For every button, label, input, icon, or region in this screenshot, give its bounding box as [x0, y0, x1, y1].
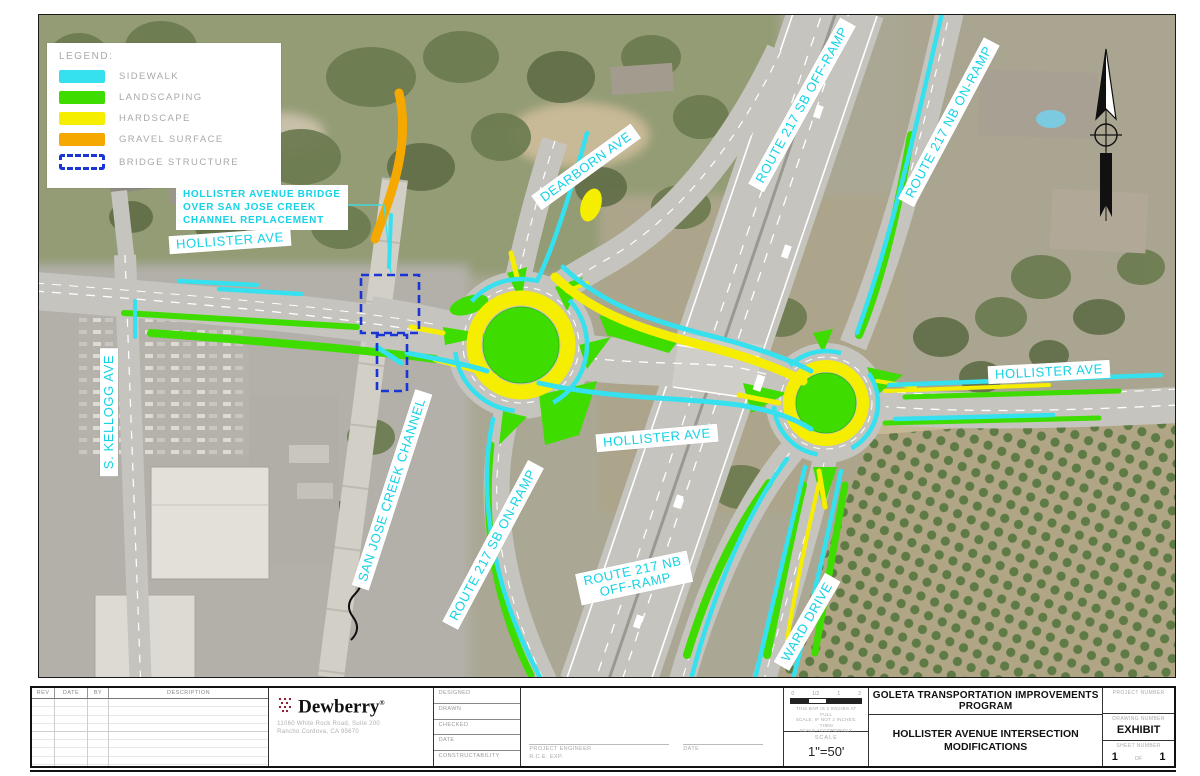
field-checked: CHECKED	[434, 720, 521, 736]
scale-bar: 01/212 THIS BAR IS 2 INCHES AT FULL SCAL…	[784, 688, 868, 732]
scale-value: 1"=50'	[784, 744, 868, 759]
rce-label: R.C.E. EXP.	[529, 754, 563, 760]
bridge-replacement-callout: HOLLISTER AVENUE BRIDGE OVER SAN JOSE CR…	[176, 185, 348, 230]
scale-note: THIS BAR IS 2 INCHES AT FULL SCALE. IF N…	[790, 706, 862, 734]
legend-item-bridge-structure: BRIDGE STRUCTURE	[59, 154, 271, 170]
date-label: DATE	[683, 746, 699, 752]
legend-item-gravel-surface: GRAVEL SURFACE	[59, 133, 271, 146]
road-label-s-kellogg-ave: S. KELLOGG AVE	[100, 348, 118, 476]
sheet-total: 1	[1159, 751, 1165, 763]
dewberry-mark-icon	[277, 696, 292, 713]
north-arrow-icon	[1084, 47, 1128, 223]
legend-label: BRIDGE STRUCTURE	[119, 157, 239, 168]
description-col: DESCRIPTION	[109, 688, 268, 698]
bridge-structure-swatch	[59, 154, 105, 170]
landscaping-swatch	[59, 91, 105, 104]
project-engineer-label: PROJECT ENGINEER	[529, 746, 591, 752]
revision-table-rows	[32, 699, 268, 766]
legend-label: SIDEWALK	[119, 71, 179, 82]
program-cell: GOLETA TRANSPORTATION IMPROVEMENTS PROGR…	[869, 688, 1103, 766]
legend-item-landscaping: LANDSCAPING	[59, 91, 271, 104]
legend-label: GRAVEL SURFACE	[119, 134, 224, 145]
by-col: BY	[88, 688, 109, 698]
gravel-surface-swatch	[59, 133, 105, 146]
revision-table: REV DATE BY DESCRIPTION	[32, 688, 269, 766]
drawing-number-box: DRAWING NUMBER EXHIBIT	[1103, 714, 1174, 740]
callout-line: CHANNEL REPLACEMENT	[183, 214, 341, 227]
legend-item-sidewalk: SIDEWALK	[59, 70, 271, 83]
plan-sheet: LEGEND: SIDEWALKLANDSCAPINGHARDSCAPEGRAV…	[0, 0, 1200, 776]
legend: LEGEND: SIDEWALKLANDSCAPINGHARDSCAPEGRAV…	[47, 43, 281, 188]
legend-label: LANDSCAPING	[119, 92, 203, 103]
program-name: GOLETA TRANSPORTATION IMPROVEMENTS PROGR…	[869, 688, 1102, 715]
field-constructability: CONSTRUCTABILITY	[434, 751, 521, 766]
legend-item-hardscape: HARDSCAPE	[59, 112, 271, 125]
field-drawn: DRAWN	[434, 704, 521, 720]
drafting-fields: DESIGNEDDRAWNCHECKEDDATECONSTRUCTABILITY	[434, 688, 522, 766]
legend-label: HARDSCAPE	[119, 113, 191, 124]
sheet-title: HOLLISTER AVENUE INTERSECTION MODIFICATI…	[869, 715, 1102, 766]
sheet-number-box: SHEET NUMBER 1 OF 1	[1103, 741, 1174, 766]
field-designed: DESIGNED	[434, 688, 521, 704]
drawing-number: EXHIBIT	[1103, 724, 1174, 736]
scale-label: SCALE	[784, 735, 868, 741]
date-col: DATE	[55, 688, 88, 698]
legend-title: LEGEND:	[59, 51, 271, 62]
numbers-cell: PROJECT NUMBER DRAWING NUMBER EXHIBIT SH…	[1103, 688, 1174, 766]
callout-line: HOLLISTER AVENUE BRIDGE	[183, 188, 341, 201]
sheet-number: 1	[1112, 751, 1118, 763]
scale-cell: 01/212 THIS BAR IS 2 INCHES AT FULL SCAL…	[784, 688, 869, 766]
dewberry-logo: Dewberry®	[277, 694, 424, 716]
project-number-box: PROJECT NUMBER	[1103, 688, 1174, 714]
callout-line: OVER SAN JOSE CREEK	[183, 201, 341, 214]
field-date: DATE	[434, 735, 521, 751]
rev-col: REV	[32, 688, 55, 698]
sidewalk-swatch	[59, 70, 105, 83]
signature-cell: PROJECT ENGINEER R.C.E. EXP. DATE	[521, 688, 784, 766]
hardscape-swatch	[59, 112, 105, 125]
scale-bar-ticks: 01/212	[790, 691, 862, 697]
title-block: REV DATE BY DESCRIPTION Dewberry® 11060 …	[30, 686, 1176, 768]
firm-address: 11060 White Rock Road, Suite 200 Rancho …	[277, 720, 424, 736]
firm-cell: Dewberry® 11060 White Rock Road, Suite 2…	[269, 688, 433, 766]
scale-bar-graphic	[790, 698, 862, 704]
firm-name: Dewberry®	[298, 694, 384, 716]
aerial-plan-view: LEGEND: SIDEWALKLANDSCAPINGHARDSCAPEGRAV…	[38, 14, 1176, 678]
revision-table-header: REV DATE BY DESCRIPTION	[32, 688, 268, 699]
